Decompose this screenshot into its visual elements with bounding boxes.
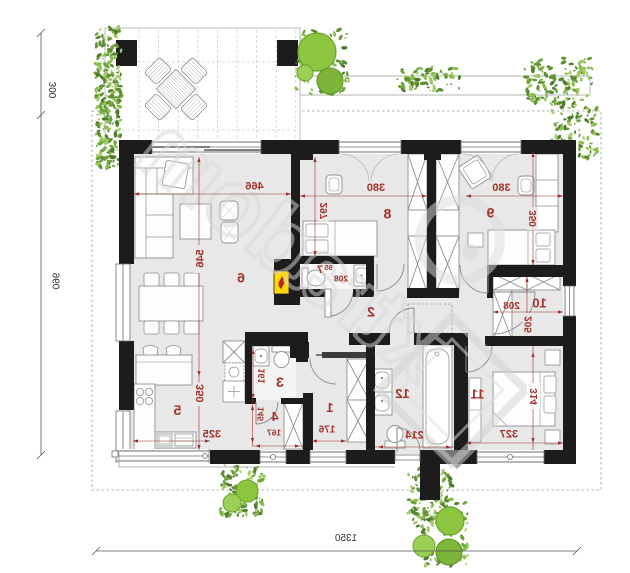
svg-text:208: 208 [334,274,348,284]
svg-text:327: 327 [500,428,518,440]
svg-text:4: 4 [271,409,279,424]
svg-text:380: 380 [367,182,385,194]
svg-text:5: 5 [173,402,181,418]
svg-text:300: 300 [48,82,59,99]
svg-text:145: 145 [256,407,266,421]
svg-text:466: 466 [245,180,263,192]
svg-text:8: 8 [383,206,391,222]
svg-text:350: 350 [194,384,206,402]
svg-text:297: 297 [319,202,330,219]
svg-text:546: 546 [194,249,206,267]
svg-text:350: 350 [528,210,539,227]
svg-text:314: 314 [529,388,540,405]
svg-text:161: 161 [256,368,266,383]
svg-text:11: 11 [471,387,485,402]
svg-text:325: 325 [203,428,221,440]
svg-text:1: 1 [326,400,333,415]
svg-text:1350: 1350 [334,533,357,544]
svg-text:208: 208 [503,301,520,312]
svg-text:10: 10 [532,296,546,311]
svg-text:380: 380 [492,182,510,194]
svg-text:214: 214 [404,429,423,441]
svg-text:9: 9 [486,205,494,221]
svg-text:176: 176 [318,425,335,436]
svg-text:205: 205 [524,316,535,333]
svg-text:95: 95 [324,263,332,272]
svg-text:7: 7 [317,264,323,276]
svg-text:2: 2 [367,304,375,320]
svg-text:960: 960 [52,273,63,290]
svg-text:3: 3 [276,374,284,390]
svg-text:6: 6 [237,270,245,286]
svg-text:167: 167 [267,428,281,438]
svg-text:12: 12 [395,386,409,401]
